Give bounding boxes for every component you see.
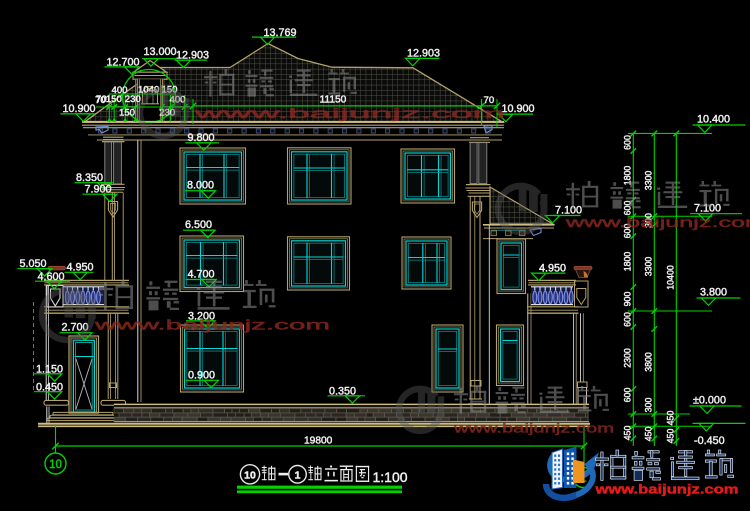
svg-text:19800: 19800 <box>304 436 333 447</box>
svg-text:450: 450 <box>666 411 676 426</box>
svg-text:70: 70 <box>484 95 495 106</box>
svg-text:www.baijunjz.com: www.baijunjz.com <box>452 422 614 436</box>
svg-text:5.050: 5.050 <box>20 258 47 270</box>
svg-text:150: 150 <box>106 94 122 105</box>
svg-text:www.baijunjz.com: www.baijunjz.com <box>594 483 738 497</box>
svg-text:3800: 3800 <box>644 352 654 372</box>
svg-text:10: 10 <box>244 470 256 482</box>
svg-text:450: 450 <box>644 427 654 442</box>
svg-text:1: 1 <box>295 469 301 481</box>
svg-text:2300: 2300 <box>623 348 633 368</box>
svg-text:4.950: 4.950 <box>67 261 94 273</box>
svg-text:1800: 1800 <box>623 252 633 272</box>
svg-text:3300: 3300 <box>644 257 654 277</box>
svg-text:3.800: 3.800 <box>700 286 727 298</box>
svg-text:3300: 3300 <box>644 171 654 191</box>
svg-text:450: 450 <box>623 426 633 441</box>
svg-text:600: 600 <box>623 388 633 403</box>
svg-text:4.700: 4.700 <box>188 269 215 281</box>
svg-text:10400: 10400 <box>666 265 676 290</box>
svg-text:13.000: 13.000 <box>144 46 177 58</box>
svg-text:600: 600 <box>623 135 633 150</box>
svg-text:www.baijunjz.com: www.baijunjz.com <box>93 317 330 333</box>
svg-text:10: 10 <box>49 459 62 471</box>
svg-text:10.900: 10.900 <box>502 103 535 115</box>
svg-text:-0.450: -0.450 <box>694 435 725 447</box>
svg-text:300: 300 <box>644 398 654 413</box>
svg-text:±0.000: ±0.000 <box>693 395 726 407</box>
svg-text:11150: 11150 <box>320 94 347 105</box>
svg-text:www.baijunjz.com: www.baijunjz.com <box>564 215 750 230</box>
svg-text:8.000: 8.000 <box>187 180 214 192</box>
svg-text:150: 150 <box>119 107 135 118</box>
svg-text:10.400: 10.400 <box>697 114 730 126</box>
svg-text:www.baijunjz.com: www.baijunjz.com <box>192 106 505 121</box>
svg-text:600: 600 <box>623 312 633 327</box>
svg-text:7.100: 7.100 <box>694 203 721 215</box>
svg-text:450: 450 <box>666 429 676 444</box>
svg-text:1:100: 1:100 <box>373 469 408 485</box>
svg-text:6.500: 6.500 <box>185 219 212 231</box>
svg-text:900: 900 <box>623 292 633 307</box>
